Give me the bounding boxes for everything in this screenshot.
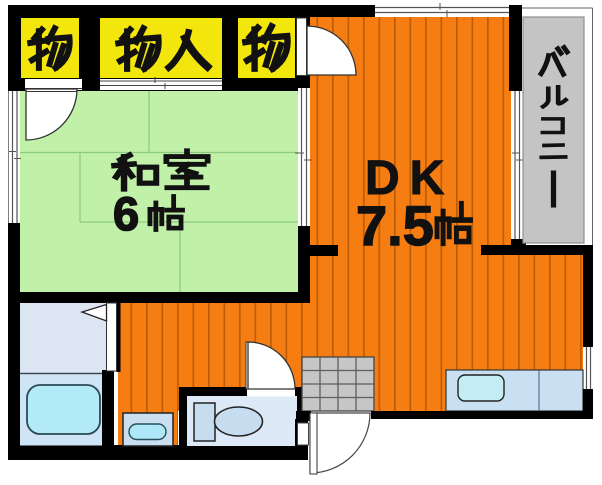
svg-text:6: 6 <box>113 187 139 240</box>
svg-text:7.5: 7.5 <box>356 194 434 257</box>
